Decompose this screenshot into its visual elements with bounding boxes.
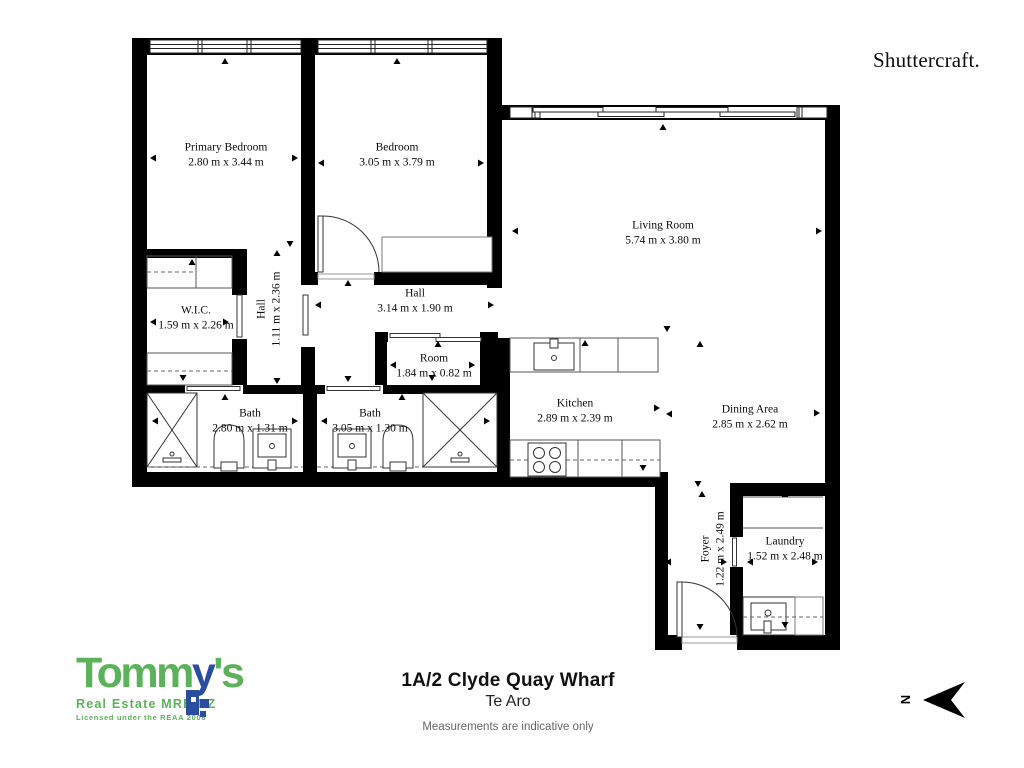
room-name: Dining Area [712, 402, 787, 417]
room-name: Laundry [747, 534, 822, 549]
property-address: 1A/2 Clyde Quay Wharf [401, 670, 614, 692]
room-label-primary-bedroom: Primary Bedroom 2.80 m x 3.44 m [185, 140, 268, 169]
room-dims: 1.59 m x 2.26 m [158, 318, 233, 333]
room-dims: 3.05 m x 1.30 m [332, 421, 407, 436]
room-name: Hall [254, 272, 269, 347]
north-label: N [898, 695, 913, 704]
north-arrow-icon [915, 676, 975, 724]
tommys-tagline: Real Estate MREINZ [76, 697, 246, 711]
room-dims: 2.85 m x 2.62 m [712, 417, 787, 432]
tommys-logo: Tommy's Real Estate MREINZ Licensed unde… [76, 652, 246, 727]
room-dims: 2.89 m x 2.39 m [537, 411, 612, 426]
room-label-hall: Hall 3.14 m x 1.90 m [377, 286, 452, 315]
tommys-license: Licensed under the REAA 2008 [76, 713, 246, 722]
room-label-bedroom: Bedroom 3.05 m x 3.79 m [359, 140, 434, 169]
tommys-wordmark: Tommy's [76, 652, 246, 695]
room-name: Bath [212, 406, 287, 421]
room-name: Living Room [625, 218, 700, 233]
room-dims: 2.80 m x 1.31 m [212, 421, 287, 436]
room-dims: 1.52 m x 2.48 m [747, 549, 822, 564]
room-label-foyer: Foyer 1.22 m x 2.49 m [698, 511, 727, 586]
shuttercraft-logo: Shuttercraft. [873, 48, 980, 73]
room-dims: 1.84 m x 0.82 m [396, 366, 471, 381]
room-name: Room [396, 351, 471, 366]
room-name: W.I.C. [158, 303, 233, 318]
property-suburb: Te Aro [401, 693, 614, 711]
room-label-room: Room 1.84 m x 0.82 m [396, 351, 471, 380]
room-name: Bath [332, 406, 407, 421]
laundry-fixtures [743, 497, 823, 635]
room-dims: 1.22 m x 2.49 m [713, 511, 728, 586]
room-label-living-room: Living Room 5.74 m x 3.80 m [625, 218, 700, 247]
room-dims: 5.74 m x 3.80 m [625, 233, 700, 248]
room-label-hall-vertical: Hall 1.11 m x 2.36 m [254, 272, 283, 347]
room-name: Bedroom [359, 140, 434, 155]
title-block: 1A/2 Clyde Quay Wharf Te Aro Measurement… [401, 670, 614, 733]
room-name: Primary Bedroom [185, 140, 268, 155]
room-dims: 2.80 m x 3.44 m [185, 155, 268, 170]
room-name: Kitchen [537, 396, 612, 411]
room-label-kitchen: Kitchen 2.89 m x 2.39 m [537, 396, 612, 425]
floorplan-page: Primary Bedroom 2.80 m x 3.44 m Bedroom … [0, 0, 1024, 768]
room-label-bath-2: Bath 3.05 m x 1.30 m [332, 406, 407, 435]
measurements-disclaimer: Measurements are indicative only [401, 721, 614, 733]
room-label-dining-area: Dining Area 2.85 m x 2.62 m [712, 402, 787, 431]
tommys-pixel-mark [186, 690, 218, 724]
room-dims: 1.11 m x 2.36 m [269, 272, 284, 347]
north-compass: N [895, 676, 980, 724]
room-label-bath-1: Bath 2.80 m x 1.31 m [212, 406, 287, 435]
room-label-wic: W.I.C. 1.59 m x 2.26 m [158, 303, 233, 332]
room-dims: 3.05 m x 3.79 m [359, 155, 434, 170]
room-name: Hall [377, 286, 452, 301]
room-dims: 3.14 m x 1.90 m [377, 301, 452, 316]
room-label-laundry: Laundry 1.52 m x 2.48 m [747, 534, 822, 563]
tommys-word-green-1: Tomm [76, 649, 192, 697]
room-name: Foyer [698, 511, 713, 586]
bedroom-wardrobe [382, 237, 492, 272]
